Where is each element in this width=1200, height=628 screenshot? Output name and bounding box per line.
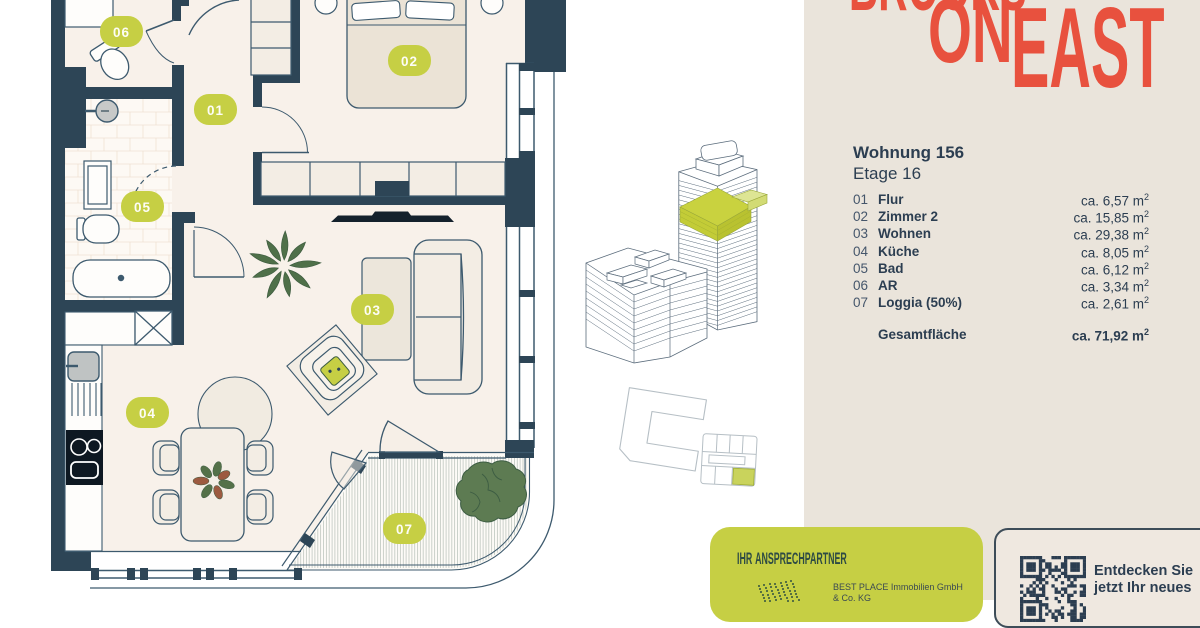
svg-text:01: 01: [207, 103, 224, 118]
svg-text:07: 07: [396, 522, 413, 537]
svg-text:02: 02: [401, 54, 418, 69]
svg-text:06: 06: [113, 25, 130, 40]
svg-text:03: 03: [364, 303, 381, 318]
svg-text:05: 05: [134, 200, 151, 215]
svg-text:04: 04: [139, 406, 156, 421]
